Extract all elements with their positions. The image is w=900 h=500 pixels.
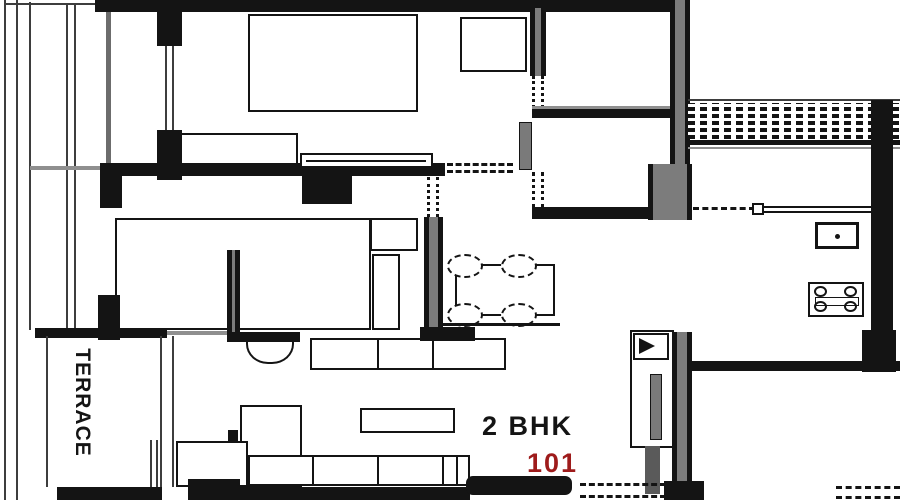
- door-swing-arrow: [639, 338, 655, 354]
- counter-joint: [752, 203, 764, 215]
- window-line: [150, 440, 152, 487]
- floor-plan: TERRACE 2 BHK 101: [0, 0, 900, 500]
- window-line: [156, 440, 158, 487]
- burner: [814, 286, 827, 297]
- vent-top-line: [688, 99, 900, 101]
- side-unit-icon: [372, 254, 400, 330]
- sofa-divider: [377, 457, 379, 484]
- low-unit-line: [306, 160, 426, 162]
- wall-gray-segment: [167, 331, 227, 335]
- vent-grille-icon: [688, 103, 900, 139]
- kitchen-sink-icon: [815, 222, 859, 249]
- wall-bedroom2-right: [424, 217, 443, 333]
- bench-line: [438, 323, 560, 326]
- dining-chair-icon: [501, 254, 537, 278]
- burner: [844, 286, 857, 297]
- door-leaf-icon: [519, 122, 532, 170]
- cabinet-divider: [432, 340, 434, 368]
- wall-bottom-pier: [466, 476, 572, 495]
- nightstand-icon: [370, 218, 418, 251]
- terrace-edge-line: [46, 336, 48, 487]
- plot-boundary-line: [5, 3, 100, 5]
- wall-top: [95, 0, 685, 12]
- dining-chair-icon: [447, 254, 483, 278]
- wall-entry-block: [648, 164, 692, 220]
- vent-bottom-gray: [688, 147, 900, 149]
- wall-bedroom1-left: [106, 12, 111, 164]
- door-leaf-icon: [650, 374, 662, 440]
- door-opening-bedroom2: [427, 177, 439, 217]
- sofa-divider: [312, 457, 314, 484]
- vent-bottom-line: [688, 140, 900, 145]
- unit-type-label: 2 BHK: [482, 413, 573, 440]
- wall-pier: [157, 8, 182, 46]
- cabinet-row-icon: [310, 338, 506, 370]
- sofa-icon: [248, 455, 470, 486]
- door-opening-bath1: [532, 76, 544, 108]
- gas-stove-icon: [808, 282, 864, 317]
- double-bed-icon: [248, 14, 418, 112]
- plot-boundary-line: [4, 0, 6, 500]
- window-line: [165, 46, 167, 130]
- wash-basin-icon: [246, 342, 294, 364]
- wall-bath-divider: [532, 106, 689, 118]
- wall-pier: [302, 176, 352, 204]
- basin-counter: [227, 332, 300, 342]
- dashed-boundary: [580, 483, 666, 498]
- wall-bottom: [238, 487, 470, 500]
- unit-number-label: 101: [527, 450, 578, 477]
- dresser-icon: [180, 133, 298, 165]
- wall-corner-block: [420, 327, 475, 341]
- wall-mid-gray: [30, 166, 100, 170]
- sofa-divider: [442, 457, 444, 484]
- wall-bottom: [57, 487, 162, 500]
- wall-entry-right: [672, 332, 692, 500]
- wall-pier: [100, 176, 122, 208]
- wall-bottom: [664, 481, 704, 500]
- wall-basin: [227, 250, 240, 333]
- low-unit-icon: [300, 153, 433, 168]
- sofa-armrest-line: [456, 457, 458, 484]
- sink-drain: [835, 234, 840, 239]
- double-bed-icon: [115, 218, 371, 330]
- counter-dash-line: [693, 207, 755, 210]
- door-opening-bath2: [532, 172, 544, 208]
- tv-unit-icon: [360, 408, 455, 433]
- stove-tray: [815, 297, 859, 306]
- cabinet-divider: [377, 340, 379, 368]
- wardrobe-icon: [460, 17, 527, 72]
- plot-boundary-line: [16, 0, 18, 500]
- door-swing-icon: [633, 333, 669, 360]
- wall-bath-left: [530, 8, 546, 76]
- wall-kitchen-bottom: [688, 361, 900, 371]
- window-line: [172, 46, 174, 130]
- door-opening-hall: [447, 163, 513, 173]
- terrace-edge-line: [172, 336, 174, 487]
- dashed-boundary: [836, 486, 900, 499]
- terrace-edge-line: [160, 336, 162, 487]
- terrace-label: TERRACE: [52, 330, 112, 475]
- wall-bottom: [188, 479, 240, 500]
- terrace-label-text: TERRACE: [72, 348, 93, 457]
